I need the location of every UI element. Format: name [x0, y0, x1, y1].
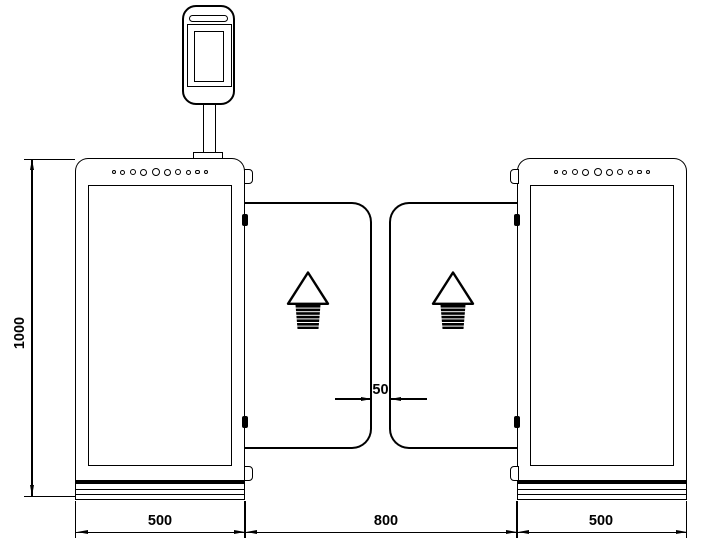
speaker-hole — [164, 169, 171, 176]
speaker-hole-row — [75, 167, 245, 177]
wing-hinge-cap — [244, 466, 253, 481]
passage-width-label: 800 — [374, 513, 398, 529]
speaker-hole — [175, 169, 181, 175]
base-trim-line — [518, 489, 686, 490]
wing-hinge-cap — [510, 466, 519, 481]
speaker-hole — [195, 170, 199, 174]
up-arrow-icon — [284, 270, 332, 332]
wing-hinge-cap — [510, 169, 519, 184]
dimension-arrow — [246, 530, 257, 534]
dimension-arrow — [390, 397, 401, 401]
speaker-hole-row — [517, 167, 687, 177]
dimension-arrow — [506, 530, 517, 534]
dimension-arrow — [77, 530, 88, 534]
left-cabinet-width-label: 500 — [148, 513, 172, 529]
up-arrow-icon — [429, 270, 477, 332]
speaker-hole — [186, 170, 191, 175]
speaker-hole — [628, 170, 633, 175]
wing-clamp — [514, 214, 520, 226]
terminal-camera-slot — [189, 15, 228, 22]
width-dimension-line — [76, 532, 687, 533]
base-trim-line — [76, 494, 244, 495]
dimension-arrow — [361, 397, 372, 401]
wing-clamp — [514, 416, 520, 428]
speaker-hole — [646, 170, 650, 174]
base-trim-line — [76, 489, 244, 490]
dimension-arrow — [234, 530, 245, 534]
speaker-hole — [617, 169, 623, 175]
left-cabinet-base — [75, 483, 245, 500]
speaker-hole — [562, 170, 567, 175]
right-cabinet-width-label: 500 — [589, 513, 613, 529]
base-trim-line — [518, 494, 686, 495]
speaker-hole — [637, 170, 641, 174]
dimension-arrow — [30, 485, 34, 496]
height-dimension-label: 1000 — [12, 317, 28, 349]
turnstile-technical-drawing: 1000 50 500 800 500 — [0, 0, 707, 552]
speaker-hole — [582, 169, 589, 176]
speaker-hole — [554, 170, 558, 174]
dimension-arrow — [518, 530, 529, 534]
right-cabinet-base — [517, 483, 687, 500]
left-cabinet-panel — [88, 185, 232, 466]
speaker-hole — [572, 169, 578, 175]
terminal-pole — [203, 103, 216, 152]
dimension-arrow — [676, 530, 687, 534]
speaker-hole — [606, 169, 613, 176]
speaker-hole — [152, 168, 160, 176]
speaker-hole — [594, 168, 602, 176]
wing-clamp — [242, 416, 248, 428]
speaker-hole — [204, 170, 208, 174]
wing-clamp — [242, 214, 248, 226]
gap-dimension-label: 50 — [372, 382, 388, 398]
speaker-hole — [140, 169, 147, 176]
speaker-hole — [130, 169, 136, 175]
speaker-hole — [120, 170, 125, 175]
right-cabinet-panel — [530, 185, 674, 466]
terminal-screen — [194, 31, 224, 82]
speaker-hole — [112, 170, 116, 174]
height-dimension-line — [31, 159, 32, 496]
dimension-arrow — [30, 159, 34, 170]
wing-hinge-cap — [244, 169, 253, 184]
